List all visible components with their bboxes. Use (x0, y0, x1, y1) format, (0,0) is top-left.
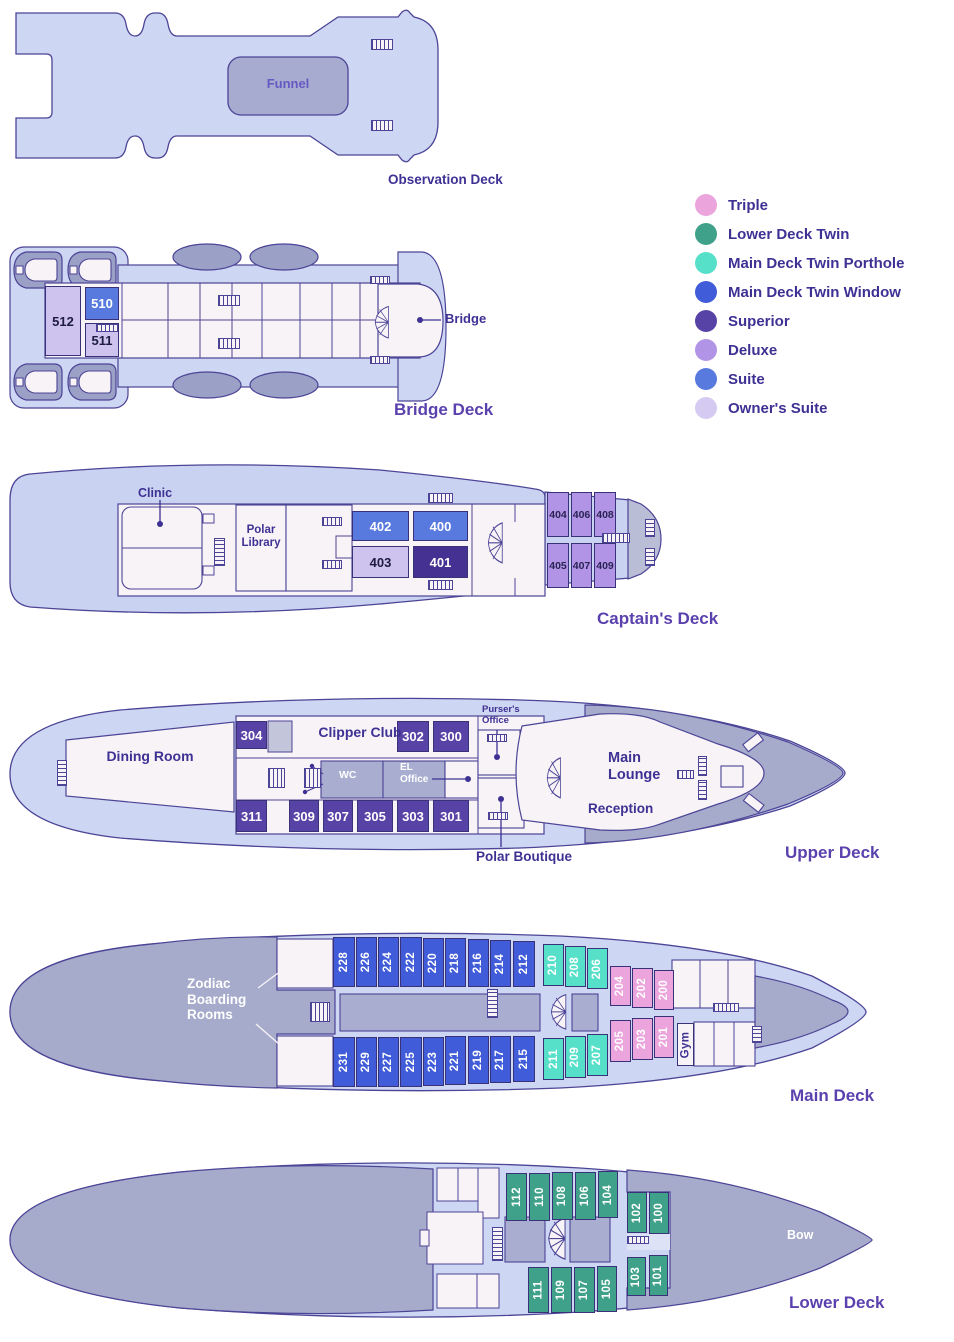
cabin-number: 106 (580, 1186, 592, 1206)
cabin-210: 210 (543, 944, 564, 986)
cabin-number: 408 (596, 509, 614, 521)
cabin-number: 409 (596, 560, 614, 572)
bridge-deck-title: Bridge Deck (394, 400, 493, 420)
legend-label: Triple (728, 197, 768, 214)
cabin-108: 108 (552, 1172, 573, 1220)
stairs-icon (487, 734, 507, 742)
main-lounge-label: Main Lounge (608, 750, 672, 783)
legend-item-suite: Suite (695, 368, 904, 390)
zodiac-boarding-rooms-label: Zodiac Boarding Rooms (187, 976, 271, 1023)
legend-item-main-deck-twin-porthole: Main Deck Twin Porthole (695, 252, 904, 274)
cabin-215: 215 (513, 1036, 535, 1082)
cabin-number: 224 (383, 952, 395, 972)
cabin-204: 204 (610, 966, 631, 1006)
cabin-404: 404 (547, 492, 569, 537)
cabin-number: 105 (601, 1279, 613, 1299)
legend-label: Owner's Suite (728, 400, 827, 417)
cabin-number: 111 (533, 1280, 545, 1299)
life-raft-icon (173, 372, 241, 398)
ladder-icon (487, 989, 498, 1018)
cabin-226: 226 (356, 937, 377, 987)
cabin-220: 220 (423, 938, 444, 987)
cabin-number: 301 (440, 809, 462, 824)
gym-label: Gym (680, 1031, 692, 1058)
cabin-201: 201 (654, 1016, 674, 1058)
cabin-number: 303 (402, 809, 424, 824)
cabin-100: 100 (649, 1192, 669, 1234)
legend-item-triple: Triple (695, 194, 904, 216)
stairs-icon (488, 812, 508, 820)
cabin-103: 103 (627, 1257, 646, 1296)
cabin-102: 102 (627, 1192, 647, 1233)
cabin-number: 202 (637, 978, 649, 998)
cabin-229: 229 (356, 1037, 377, 1087)
reception-label: Reception (588, 801, 653, 817)
cabin-number: 305 (364, 809, 386, 824)
legend-item-owners-suite: Owner's Suite (695, 397, 904, 419)
cabin-211: 211 (543, 1038, 564, 1080)
cabin-number: 401 (430, 555, 452, 570)
cabin-401: 401 (413, 546, 468, 578)
main-deck-title: Main Deck (790, 1086, 874, 1106)
polar-boutique-label: Polar Boutique (476, 849, 572, 865)
legend-label: Main Deck Twin Window (728, 284, 901, 301)
cabin-219: 219 (468, 1036, 489, 1084)
observation-deck-hull (16, 10, 438, 162)
legend-swatch-superior (695, 310, 717, 332)
cabin-202: 202 (632, 968, 653, 1008)
cabin-number: 221 (450, 1050, 462, 1070)
clipper-club-label: Clipper Club (308, 724, 412, 740)
cabin-number: 231 (338, 1052, 350, 1072)
funnel-label: Funnel (228, 77, 348, 92)
stairs-icon (310, 1002, 330, 1022)
wc-label: WC (339, 769, 357, 781)
ladder-icon (752, 1026, 762, 1043)
stairs-icon (218, 338, 240, 349)
ladder-icon (698, 756, 707, 776)
cabin-number: 204 (615, 976, 627, 996)
cabin-218: 218 (445, 938, 466, 987)
ladder-icon (645, 519, 655, 537)
bridge-label: Bridge (445, 312, 486, 327)
cabin-number: 311 (241, 809, 262, 824)
cabin-224: 224 (378, 937, 399, 987)
cabin-number: 101 (653, 1265, 665, 1285)
cabin-number: 402 (370, 519, 392, 534)
cabin-number: 309 (293, 809, 315, 824)
cabin-number: 108 (557, 1186, 569, 1206)
cabin-number: 227 (383, 1052, 395, 1072)
stairs-icon (370, 356, 390, 364)
cabin-206: 206 (587, 948, 608, 989)
legend-label: Main Deck Twin Porthole (728, 255, 904, 272)
cabin-number: 222 (405, 952, 417, 972)
cabin-409: 409 (594, 543, 616, 588)
zodiac-boarding-room (277, 939, 333, 988)
cabin-number: 512 (52, 314, 74, 329)
cabin-307: 307 (323, 800, 353, 832)
cabin-number: 207 (592, 1045, 604, 1065)
ladder-icon (492, 1227, 503, 1261)
cabin-200: 200 (654, 970, 674, 1010)
cabin-number: 400 (430, 519, 452, 534)
cabin-number: 201 (658, 1027, 670, 1047)
legend-label: Suite (728, 371, 765, 388)
el-office-label: EL Office (400, 762, 434, 785)
cabin-number: 229 (361, 1052, 373, 1072)
cabin-number: 102 (631, 1202, 643, 1222)
cabin-207: 207 (587, 1034, 608, 1076)
cabin-number: 112 (511, 1187, 523, 1207)
upper-deck-title: Upper Deck (785, 843, 879, 863)
polar-library-label: Polar Library (237, 524, 285, 550)
stairs-icon (96, 324, 118, 332)
cabin-number: 216 (473, 953, 485, 973)
cabin-203: 203 (632, 1018, 653, 1060)
cabin-number: 212 (518, 954, 530, 974)
legend-swatch-deluxe (695, 339, 717, 361)
cabin-number: 217 (495, 1049, 507, 1069)
cabin-number: 206 (592, 958, 604, 978)
cabin-104: 104 (598, 1171, 618, 1218)
legend-swatch-main-deck-twin-porthole (695, 252, 717, 274)
stern-hull-area (10, 1166, 433, 1314)
cabin-number: 304 (241, 728, 263, 743)
legend-item-lower-deck-twin: Lower Deck Twin (695, 223, 904, 245)
cabin-231: 231 (333, 1037, 355, 1087)
stairs-icon (602, 533, 630, 543)
life-raft-icon (250, 372, 318, 398)
cabin-305: 305 (357, 800, 393, 832)
cabin-number: 110 (534, 1187, 546, 1207)
cabin-208: 208 (565, 946, 586, 987)
observation-deck-title: Observation Deck (388, 172, 503, 188)
cabin-311: 311 (236, 800, 267, 832)
cabin-number: 107 (579, 1280, 591, 1300)
cabin-number: 403 (370, 555, 392, 570)
cabin-217: 217 (490, 1036, 511, 1083)
cabin-209: 209 (565, 1036, 586, 1078)
cabin-107: 107 (574, 1267, 595, 1313)
cabin-number: 407 (573, 560, 591, 572)
cabin-400: 400 (413, 511, 468, 541)
legend-swatch-suite (695, 368, 717, 390)
cabin-407: 407 (571, 543, 592, 588)
cabin-109: 109 (551, 1267, 572, 1313)
stairs-icon (371, 39, 393, 50)
cabin-number: 228 (338, 952, 350, 972)
legend-label: Deluxe (728, 342, 777, 359)
legend-label: Superior (728, 313, 790, 330)
legend-label: Lower Deck Twin (728, 226, 849, 243)
stairs-icon (428, 493, 453, 503)
dining-room-label: Dining Room (98, 748, 202, 764)
legend-item-deluxe: Deluxe (695, 339, 904, 361)
cabin-110: 110 (529, 1173, 550, 1221)
cabin-number: 104 (602, 1184, 614, 1204)
cabin-number: 214 (495, 953, 507, 973)
life-raft-icon (173, 244, 241, 270)
cabin-number: 109 (556, 1280, 568, 1300)
cabin-number: 210 (548, 955, 560, 975)
gym-room: Gym (677, 1023, 694, 1066)
stairs-icon (677, 770, 694, 779)
cabin-112: 112 (506, 1173, 527, 1221)
pursers-office-label: Purser's Office (482, 705, 528, 727)
cabin-304: 304 (236, 721, 267, 749)
ladder-icon (698, 780, 707, 800)
cabin-number: 203 (637, 1029, 649, 1049)
cabin-214: 214 (490, 940, 511, 987)
deck-plan-canvas: Triple Lower Deck Twin Main Deck Twin Po… (0, 0, 954, 1342)
cabin-408: 408 (594, 492, 616, 537)
life-raft-icon (250, 244, 318, 270)
cabin-number: 223 (428, 1051, 440, 1071)
legend-swatch-main-deck-twin-window (695, 281, 717, 303)
cabin-106: 106 (575, 1172, 596, 1220)
cabin-number: 103 (631, 1266, 643, 1286)
cabin-405: 405 (547, 543, 569, 588)
cabin-223: 223 (423, 1037, 444, 1086)
cabin-number: 208 (570, 956, 582, 976)
cabin-number: 300 (440, 729, 462, 744)
cabin-512: 512 (45, 286, 81, 356)
cabin-number: 200 (658, 980, 670, 1000)
cabin-number: 218 (450, 952, 462, 972)
cabin-111: 111 (528, 1267, 549, 1313)
captains-deck-title: Captain's Deck (597, 609, 718, 629)
cabin-number: 226 (361, 952, 373, 972)
stairs-icon (370, 276, 390, 284)
cabin-406: 406 (571, 492, 592, 537)
cabin-number: 220 (428, 952, 440, 972)
captains-deck-hull (10, 465, 661, 613)
cabin-number: 211 (548, 1049, 560, 1069)
stairs-icon (322, 560, 342, 569)
cabin-222: 222 (400, 937, 422, 987)
stairs-icon (371, 120, 393, 131)
stairs-icon (428, 580, 453, 590)
legend-swatch-triple (695, 194, 717, 216)
stern-platform (628, 499, 661, 579)
cabin-212: 212 (513, 941, 535, 987)
cabin-303: 303 (397, 800, 429, 832)
stairs-icon (322, 517, 342, 526)
cabin-number: 209 (570, 1047, 582, 1067)
cabin-number: 405 (549, 560, 567, 572)
stairs-icon (304, 768, 321, 788)
cabin-227: 227 (378, 1037, 399, 1087)
cabin-number: 215 (518, 1049, 530, 1069)
bow-label: Bow (787, 1228, 813, 1242)
cabin-205: 205 (610, 1020, 631, 1062)
zodiac-boarding-room (277, 1036, 333, 1086)
cabin-216: 216 (468, 939, 489, 987)
lower-deck-hull (10, 1163, 872, 1317)
stairs-icon (627, 1236, 649, 1244)
stairs-icon (268, 768, 285, 788)
stairs-icon (713, 1003, 739, 1012)
cabin-number: 205 (615, 1031, 627, 1051)
ladder-icon (645, 548, 655, 566)
cabin-number: 100 (653, 1203, 665, 1223)
cabin-101: 101 (649, 1255, 668, 1296)
legend-swatch-lower-deck-twin (695, 223, 717, 245)
lower-deck-title: Lower Deck (789, 1293, 884, 1313)
cabin-number: 510 (91, 296, 113, 311)
cabin-number: 511 (92, 333, 113, 348)
cabin-number: 404 (549, 509, 567, 521)
cabin-number: 307 (327, 809, 349, 824)
legend-item-main-deck-twin-window: Main Deck Twin Window (695, 281, 904, 303)
cabin-105: 105 (597, 1266, 617, 1312)
cabin-510: 510 (85, 287, 119, 320)
cabin-number: 225 (405, 1052, 417, 1072)
cabin-402: 402 (352, 511, 409, 541)
cabin-403: 403 (352, 546, 409, 578)
legend-item-superior: Superior (695, 310, 904, 332)
cabin-number: 219 (473, 1050, 485, 1070)
cabin-221: 221 (445, 1036, 466, 1085)
ladder-icon (57, 760, 67, 786)
stairs-icon (218, 295, 240, 306)
cabin-number: 406 (573, 509, 591, 521)
cabin-309: 309 (289, 800, 319, 832)
legend-swatch-owners-suite (695, 397, 717, 419)
ladder-icon (214, 538, 225, 566)
clinic-label: Clinic (138, 486, 172, 500)
cabin-300: 300 (433, 721, 469, 752)
cabin-228: 228 (333, 937, 355, 987)
cabin-225: 225 (400, 1037, 422, 1087)
cabin-category-legend: Triple Lower Deck Twin Main Deck Twin Po… (695, 194, 904, 419)
cabin-301: 301 (433, 800, 469, 832)
